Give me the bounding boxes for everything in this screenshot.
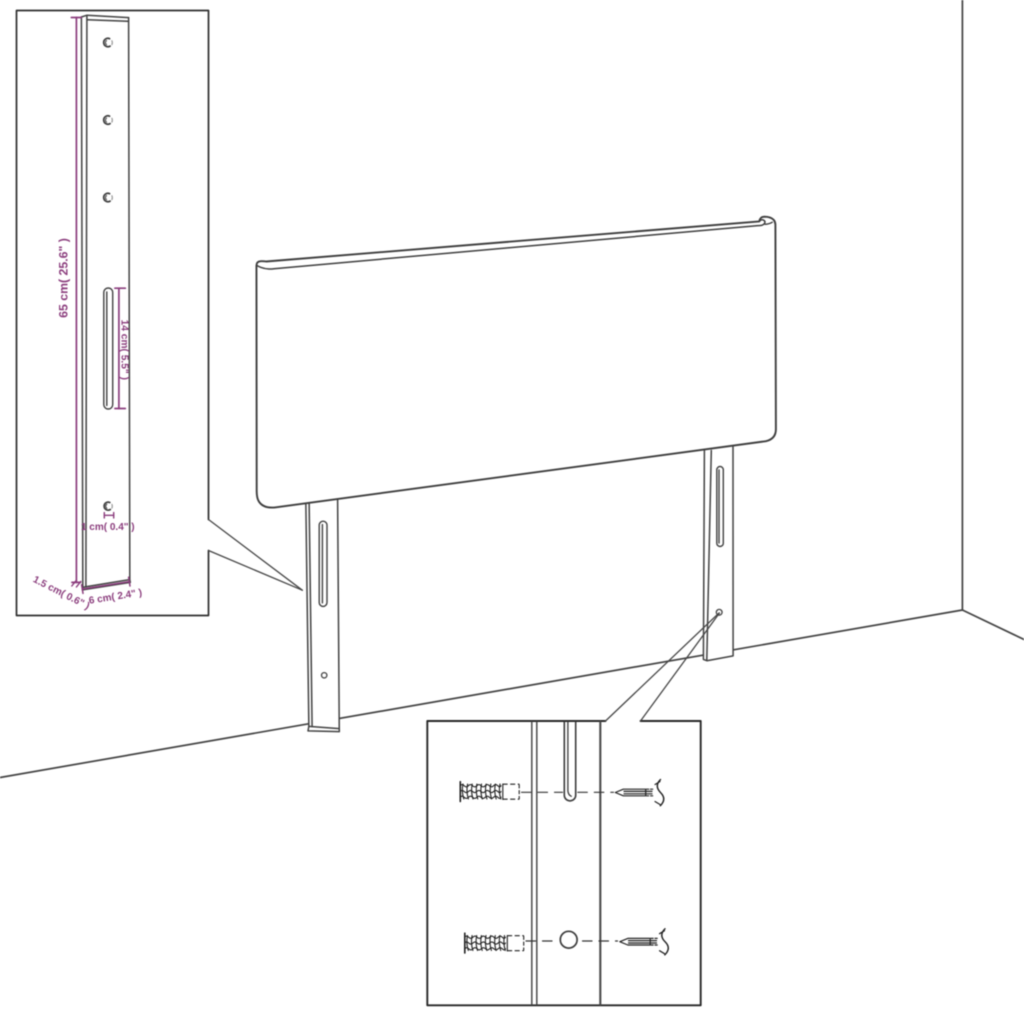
- svg-text:1 cm( 0.4" ): 1 cm( 0.4" ): [81, 522, 135, 533]
- svg-text:14 cm( 5.5" ): 14 cm( 5.5" ): [119, 320, 130, 380]
- svg-text:65 cm( 25.6" ): 65 cm( 25.6" ): [56, 238, 70, 318]
